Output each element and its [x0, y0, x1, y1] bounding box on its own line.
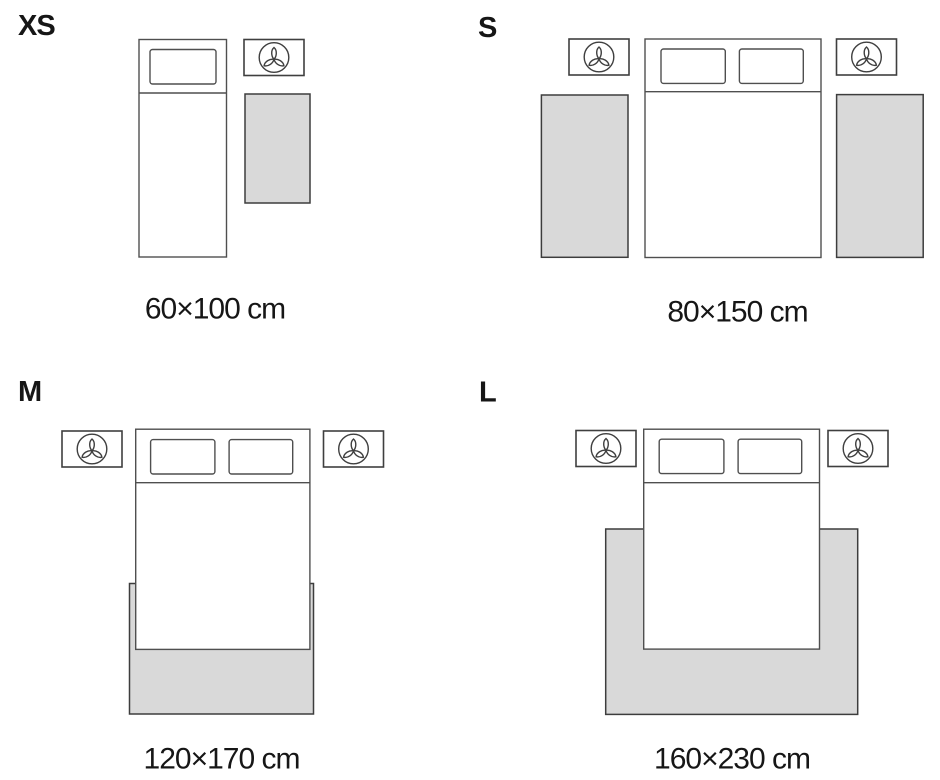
- svg-text:80×150 cm: 80×150 cm: [667, 296, 807, 329]
- svg-text:L: L: [479, 377, 496, 409]
- svg-text:60×100 cm: 60×100 cm: [145, 293, 285, 326]
- svg-text:120×170 cm: 120×170 cm: [144, 743, 300, 776]
- svg-text:M: M: [18, 376, 41, 408]
- svg-text:160×230 cm: 160×230 cm: [654, 743, 810, 776]
- svg-text:XS: XS: [18, 10, 55, 42]
- svg-text:S: S: [478, 12, 497, 44]
